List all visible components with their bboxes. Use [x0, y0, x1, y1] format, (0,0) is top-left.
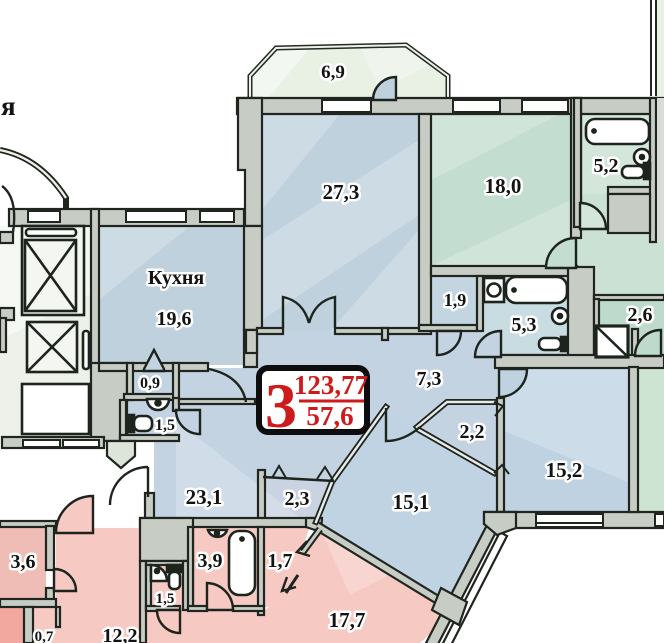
- svg-text:2,6: 2,6: [628, 304, 653, 326]
- svg-text:6,9: 6,9: [321, 62, 345, 83]
- svg-text:5,3: 5,3: [512, 314, 537, 336]
- svg-text:57,6: 57,6: [306, 401, 353, 431]
- svg-text:123,77: 123,77: [294, 370, 368, 400]
- svg-text:я: я: [1, 91, 16, 121]
- svg-text:17,7: 17,7: [329, 608, 366, 632]
- svg-text:3: 3: [265, 370, 297, 441]
- svg-text:0,9: 0,9: [140, 375, 160, 392]
- svg-text:23,1: 23,1: [186, 485, 223, 509]
- svg-text:27,3: 27,3: [323, 180, 360, 204]
- svg-text:18,0: 18,0: [485, 174, 522, 198]
- svg-text:Кухня: Кухня: [148, 267, 205, 289]
- svg-text:3,6: 3,6: [11, 551, 36, 573]
- svg-text:1,9: 1,9: [444, 290, 467, 310]
- svg-text:1,5: 1,5: [156, 591, 175, 607]
- svg-text:5,2: 5,2: [594, 155, 619, 177]
- svg-text:15,1: 15,1: [393, 490, 430, 514]
- svg-text:3,9: 3,9: [198, 550, 223, 572]
- svg-text:19,6: 19,6: [157, 308, 192, 330]
- svg-text:12,2: 12,2: [103, 625, 138, 643]
- svg-text:7,3: 7,3: [417, 368, 442, 390]
- svg-text:15,2: 15,2: [546, 458, 583, 482]
- svg-text:0,7: 0,7: [35, 629, 54, 643]
- svg-text:2,3: 2,3: [285, 488, 310, 510]
- svg-text:2,2: 2,2: [460, 421, 485, 443]
- svg-text:1,7: 1,7: [268, 550, 293, 572]
- svg-text:1,5: 1,5: [155, 417, 175, 434]
